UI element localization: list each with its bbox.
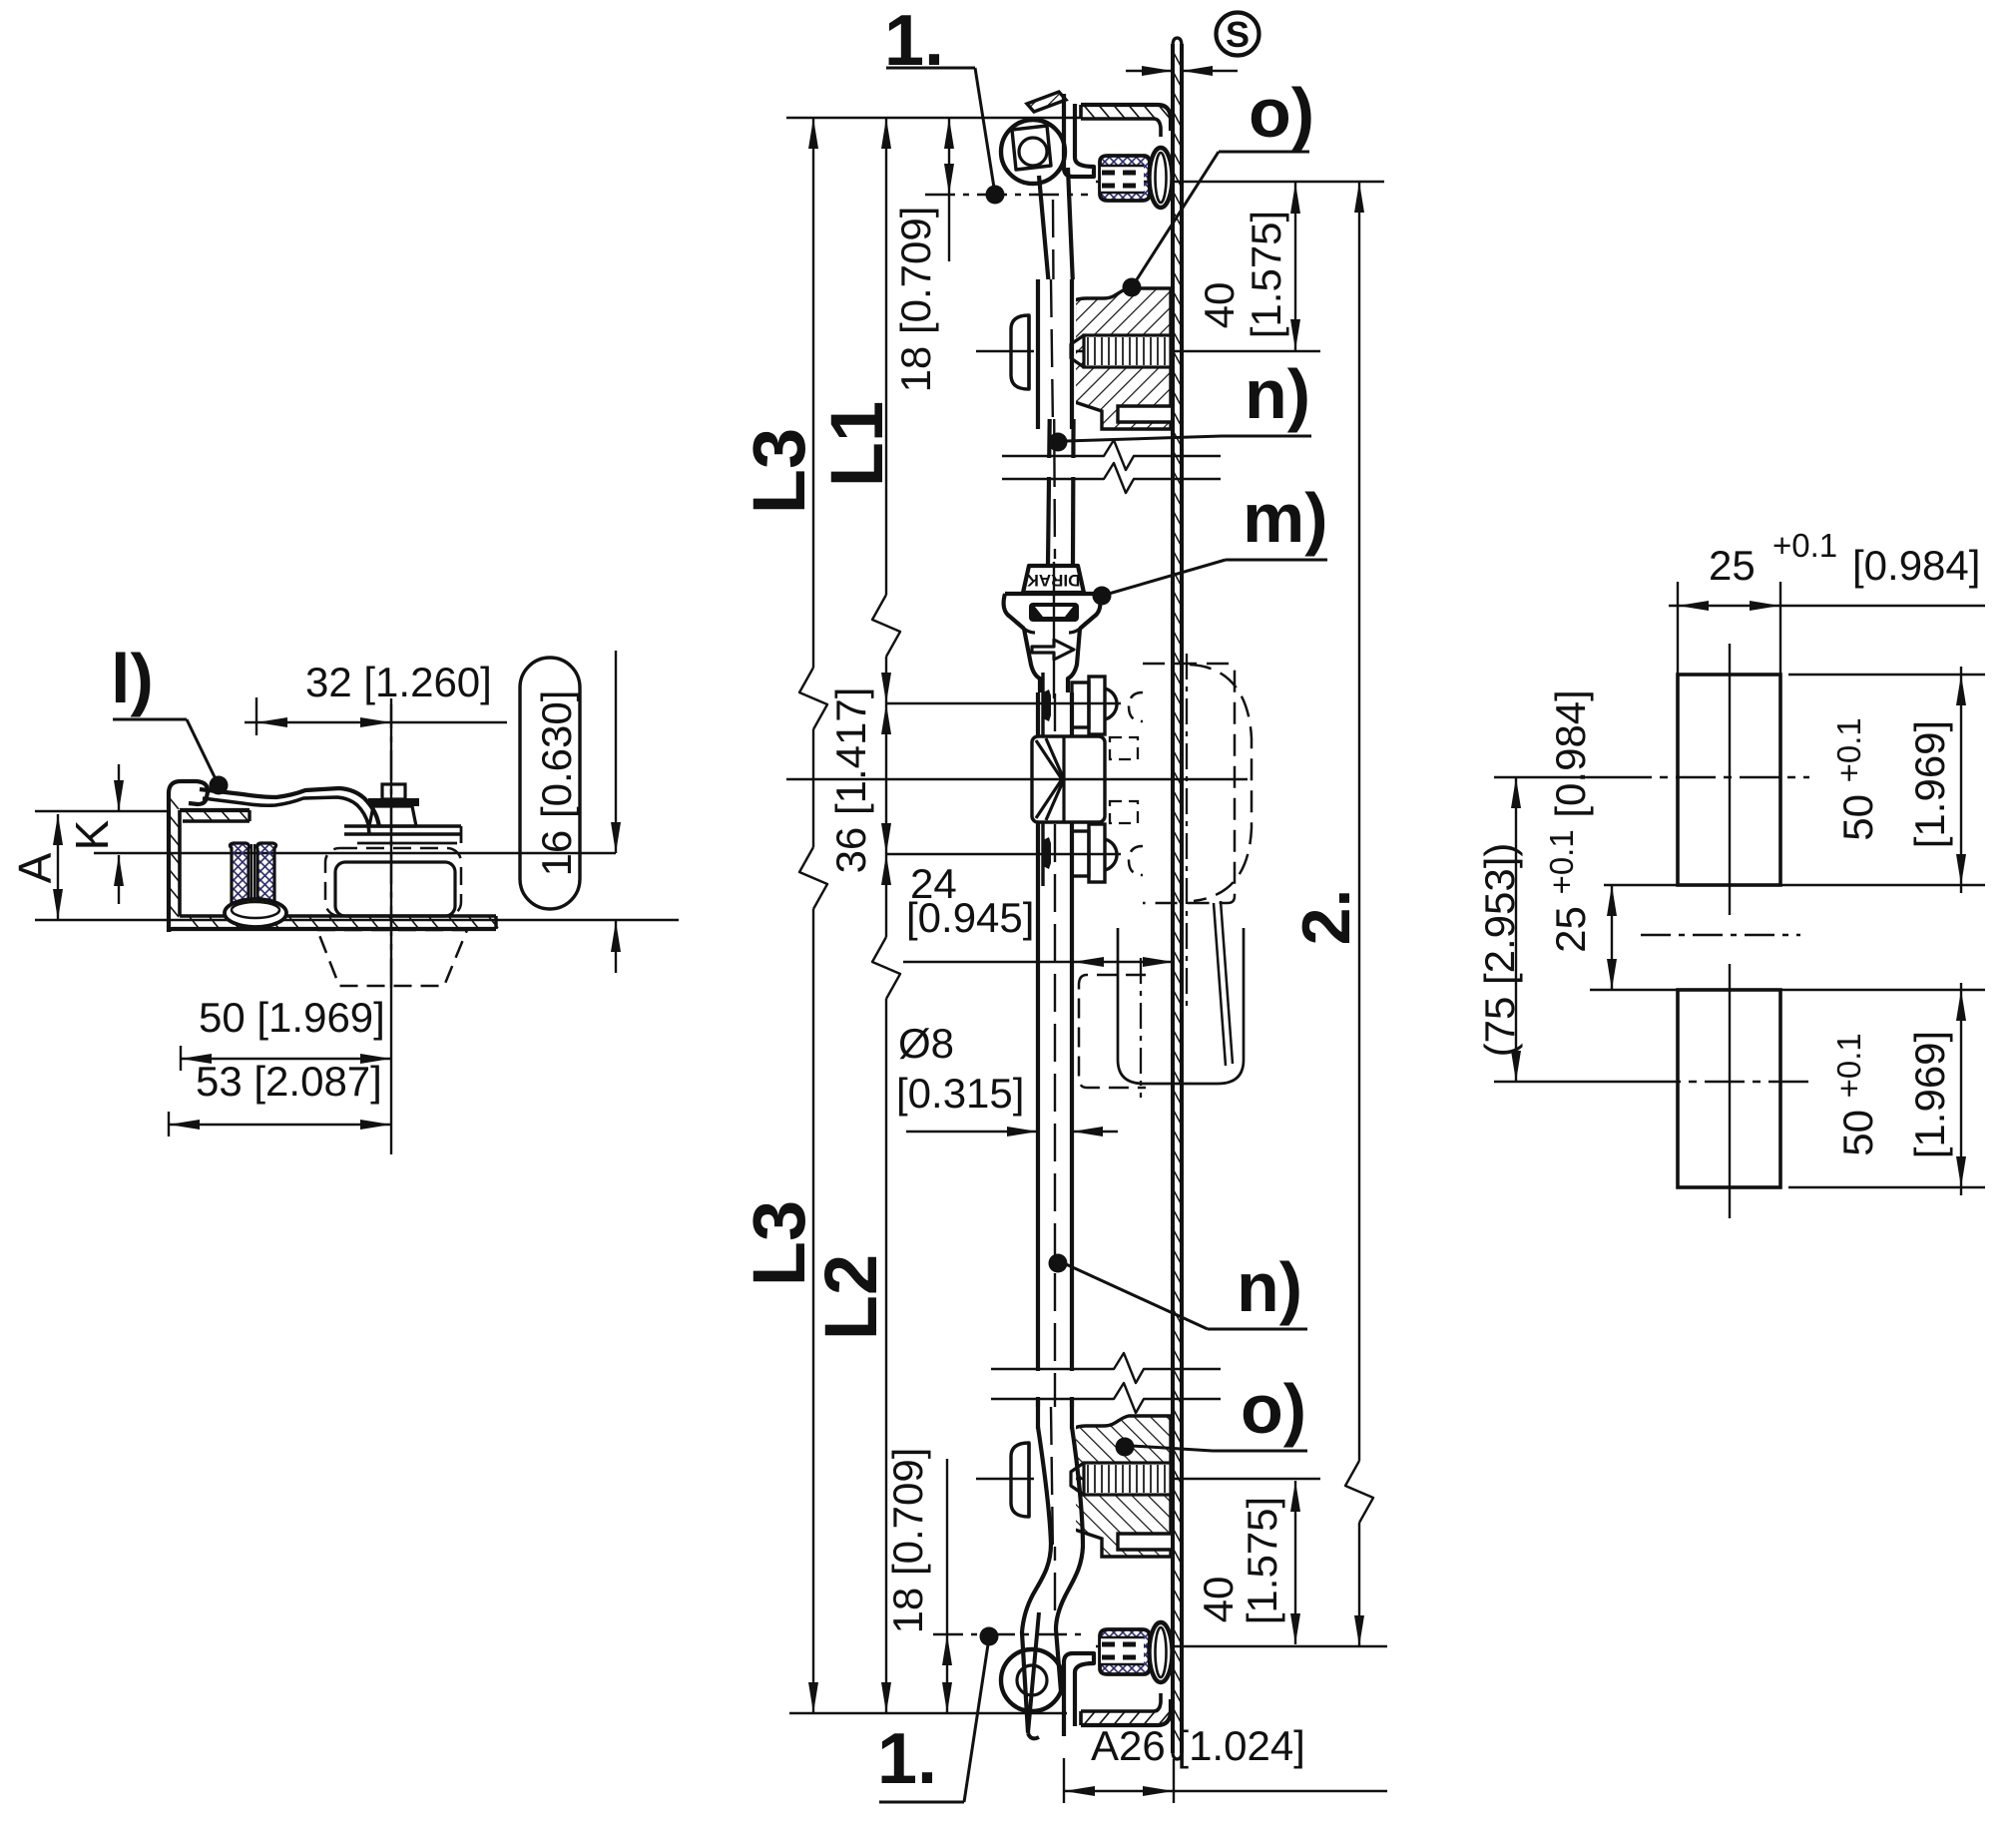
svg-text:[1.575]: [1.575]	[1239, 1497, 1285, 1624]
svg-text:o): o)	[1241, 1370, 1306, 1448]
svg-text:L3: L3	[738, 1200, 820, 1286]
svg-text:[0.945]: [0.945]	[906, 894, 1034, 941]
svg-text:n): n)	[1245, 355, 1310, 433]
svg-text:o): o)	[1249, 74, 1314, 152]
svg-text:25 +0.1 [0.984]: 25 +0.1 [0.984]	[1543, 689, 1594, 953]
svg-text:A26 [1.024]: A26 [1.024]	[1091, 1722, 1305, 1769]
svg-text:S: S	[1226, 14, 1250, 55]
svg-text:2.: 2.	[1288, 889, 1364, 946]
svg-text:l): l)	[111, 640, 154, 717]
svg-text:[1.969]: [1.969]	[1906, 720, 1953, 848]
svg-text:+0.1: +0.1	[1772, 527, 1837, 564]
svg-text:[1.969]: [1.969]	[1906, 1031, 1953, 1158]
svg-text:[0.984]: [0.984]	[1852, 542, 1980, 589]
svg-text:25: 25	[1709, 542, 1756, 589]
svg-text:50 [1.969]: 50 [1.969]	[199, 994, 385, 1041]
svg-text:40: 40	[1196, 282, 1243, 329]
svg-text:Ø8: Ø8	[898, 1020, 954, 1067]
svg-text:32 [1.260]: 32 [1.260]	[305, 659, 492, 705]
svg-text:n): n)	[1237, 1248, 1302, 1326]
svg-text:L1: L1	[815, 401, 898, 487]
svg-text:L2: L2	[809, 1254, 892, 1340]
svg-text:m): m)	[1243, 479, 1328, 557]
svg-text:L3: L3	[738, 428, 820, 514]
svg-text:16 [0.630]: 16 [0.630]	[533, 690, 580, 877]
svg-text:A: A	[9, 852, 61, 883]
svg-text:53 [2.087]: 53 [2.087]	[196, 1058, 382, 1105]
svg-text:[1.575]: [1.575]	[1243, 211, 1289, 338]
svg-text:36 [1.417]: 36 [1.417]	[827, 687, 874, 874]
svg-text:K: K	[66, 819, 118, 850]
svg-text:40: 40	[1195, 1577, 1242, 1623]
svg-text:(75 [2.953]): (75 [2.953])	[1476, 843, 1523, 1058]
svg-text:18 [0.709]: 18 [0.709]	[884, 1448, 931, 1634]
svg-text:18 [0.709]: 18 [0.709]	[892, 207, 939, 393]
svg-text:1.: 1.	[877, 1719, 937, 1799]
svg-text:[0.315]: [0.315]	[896, 1070, 1024, 1117]
